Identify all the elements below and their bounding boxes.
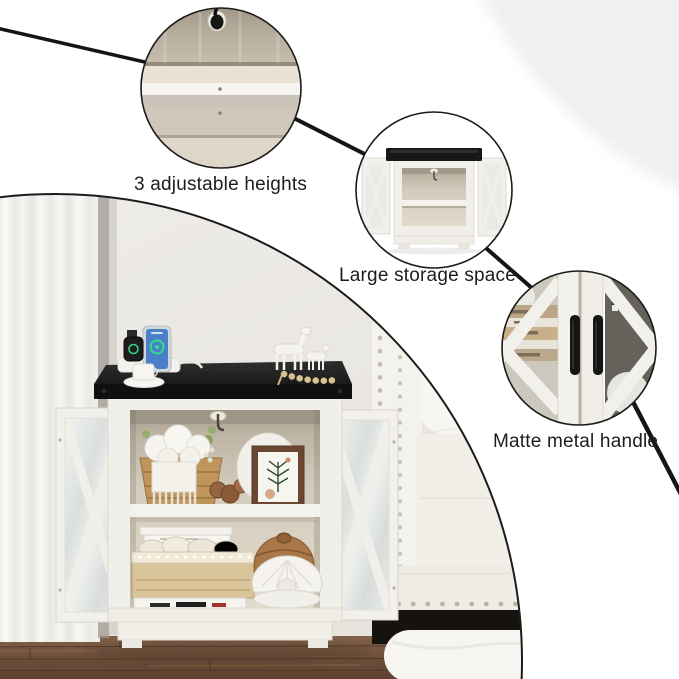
- wicker-box: [132, 552, 254, 598]
- feature-label-storage-space: Large storage space: [339, 265, 516, 287]
- feature-label-adjustable-heights: 3 adjustable heights: [134, 174, 307, 196]
- cabinet: [56, 326, 398, 648]
- shelf-decor-bottom: [132, 527, 322, 612]
- shell-decor: [252, 556, 322, 608]
- product-feature-image: 3 adjustable heights Large storage space…: [0, 0, 679, 679]
- leader-line-1: [0, 27, 162, 66]
- cable-hole: [208, 0, 226, 31]
- callout-storage-space: [356, 112, 512, 268]
- feature-label-metal-handle: Matte metal handle: [493, 431, 658, 453]
- picture-frame: [252, 446, 304, 508]
- mini-black-top: [386, 148, 482, 161]
- feature-graphic: [0, 0, 679, 679]
- callout-adjustable-heights: [141, 0, 301, 168]
- mini-left-door: [362, 158, 390, 234]
- mini-right-door: [478, 158, 506, 236]
- main-product-photo: [0, 178, 679, 679]
- callout-metal-handle: [496, 271, 662, 425]
- fluffy-rug: [384, 630, 679, 679]
